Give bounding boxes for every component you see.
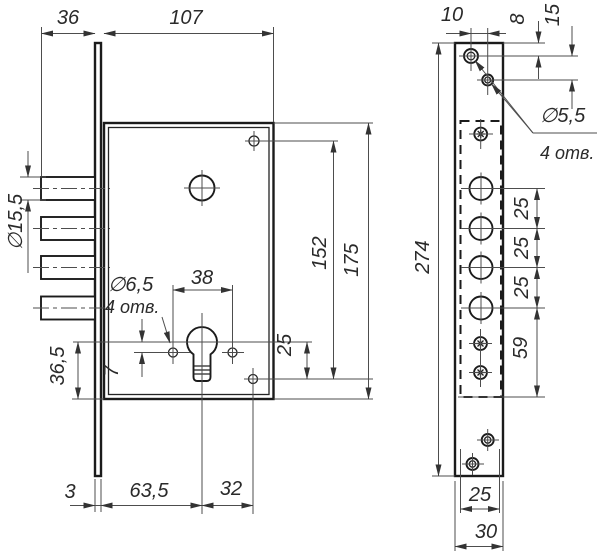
dim-faceplate-thickness: 3 [64,481,75,503]
lock-case-outline [104,123,274,399]
dim-plate-height: 274 [412,240,434,274]
dim-offset-32: 32 [220,478,242,500]
technical-drawing-lock: 36 107 ∅15,5 36,5 ∅6,5 4 отв. 38 7 25 15… [0,0,600,553]
dim-body-width: 107 [169,7,203,29]
dim-pitch-25-2: 25 [511,236,533,260]
dim-case-width-25: 25 [468,484,492,506]
dim-plate-width-30: 30 [475,521,497,543]
dim-hole-diameter: ∅6,5 [108,274,154,296]
dim-edge-offset-8: 8 [507,13,529,24]
dim-hole-spacing: 38 [191,267,213,289]
dim-backset: 63,5 [130,480,170,502]
drawing-canvas: 36 107 ∅15,5 36,5 ∅6,5 4 отв. 38 7 25 15… [0,0,600,553]
dim-holes-span: 152 [309,236,331,269]
dim-bolt-diameter: ∅15,5 [5,193,27,250]
dim-pitch-25-1: 25 [511,197,533,221]
dim-hole-pitch-15: 15 [542,3,564,26]
dim-bolt-throw: 36 [57,7,80,29]
dim-pitch-25-3: 25 [511,276,533,300]
dim-offset-25: 25 [274,333,296,357]
dim-cyl-to-bottom: 36,5 [47,346,69,386]
dim-hole-count-side: 4 отв. [540,143,594,163]
dim-offset-7: 7 [101,365,123,377]
dim-hole-offset-10: 10 [441,4,463,26]
dim-hole-count: 4 отв. [105,297,159,317]
dim-body-height: 175 [341,242,363,276]
deadbolts [41,177,95,320]
dim-hole-diameter-side: ∅5,5 [540,105,586,127]
dim-offset-59: 59 [510,337,532,359]
